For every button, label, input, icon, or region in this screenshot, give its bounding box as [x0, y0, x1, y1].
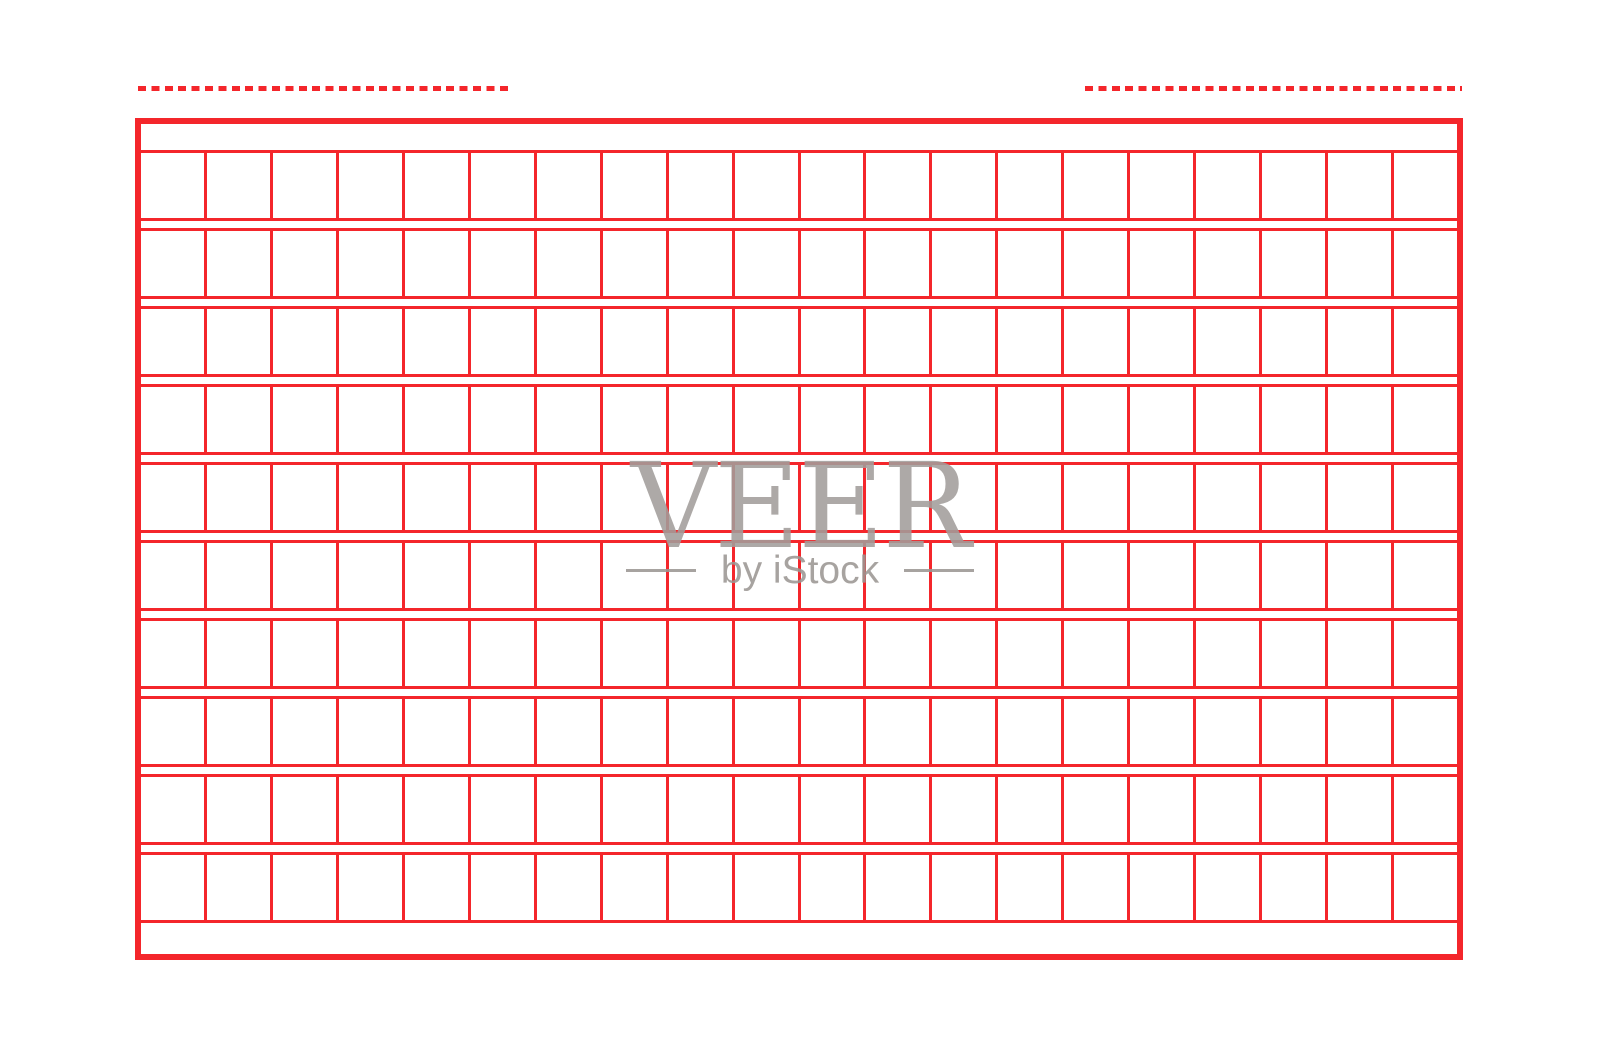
character-cell [1130, 699, 1196, 764]
top-dashed-line-left [138, 86, 510, 91]
character-cell [1130, 153, 1196, 218]
top-dashed-line-right [1085, 86, 1462, 91]
character-cell [273, 699, 339, 764]
character-cell [537, 387, 603, 452]
character-cell [603, 465, 669, 530]
character-cell [998, 543, 1064, 608]
character-cell [1328, 543, 1394, 608]
character-cell [537, 153, 603, 218]
character-cell [801, 153, 867, 218]
character-cell [603, 855, 669, 920]
character-cell [603, 309, 669, 374]
character-cell [801, 855, 867, 920]
character-cell [537, 699, 603, 764]
character-cell [735, 699, 801, 764]
character-cell [1394, 621, 1457, 686]
character-cell [471, 387, 537, 452]
character-cell [207, 465, 273, 530]
character-cell [1196, 387, 1262, 452]
character-cell [207, 777, 273, 842]
character-cell [405, 855, 471, 920]
character-cell [998, 777, 1064, 842]
character-cell [603, 153, 669, 218]
writing-row [141, 384, 1457, 455]
character-cell [141, 465, 207, 530]
character-cell [471, 621, 537, 686]
writing-rows-container [141, 124, 1457, 954]
character-cell [932, 387, 998, 452]
character-cell [998, 153, 1064, 218]
character-cell [603, 231, 669, 296]
character-cell [405, 153, 471, 218]
character-cell [273, 621, 339, 686]
character-cell [1328, 699, 1394, 764]
character-cell [801, 387, 867, 452]
character-cell [998, 621, 1064, 686]
character-cell [1196, 777, 1262, 842]
character-cell [1262, 777, 1328, 842]
character-cell [1064, 231, 1130, 296]
character-cell [932, 777, 998, 842]
character-cell [866, 309, 932, 374]
writing-row [141, 462, 1457, 533]
character-cell [866, 543, 932, 608]
character-cell [735, 621, 801, 686]
character-cell [1394, 855, 1457, 920]
character-cell [603, 387, 669, 452]
character-cell [669, 387, 735, 452]
character-cell [1064, 465, 1130, 530]
character-cell [1196, 543, 1262, 608]
character-cell [1328, 621, 1394, 686]
character-cell [932, 621, 998, 686]
character-cell [603, 699, 669, 764]
character-cell [801, 543, 867, 608]
character-cell [207, 309, 273, 374]
character-cell [866, 621, 932, 686]
character-cell [1064, 621, 1130, 686]
character-cell [141, 777, 207, 842]
character-cell [537, 309, 603, 374]
character-cell [866, 855, 932, 920]
character-cell [1130, 543, 1196, 608]
character-cell [141, 231, 207, 296]
character-cell [273, 465, 339, 530]
character-cell [1130, 621, 1196, 686]
character-cell [1262, 699, 1328, 764]
composition-sheet-page: { "page": { "background": "#ffffff" }, "… [0, 0, 1600, 1048]
character-cell [932, 231, 998, 296]
character-cell [801, 309, 867, 374]
character-cell [1064, 153, 1130, 218]
character-cell [1394, 777, 1457, 842]
character-cell [1064, 387, 1130, 452]
character-cell [141, 153, 207, 218]
character-cell [1262, 543, 1328, 608]
character-cell [339, 621, 405, 686]
character-cell [801, 465, 867, 530]
character-cell [1196, 855, 1262, 920]
character-cell [1262, 465, 1328, 530]
character-cell [1328, 387, 1394, 452]
character-cell [141, 621, 207, 686]
character-cell [273, 543, 339, 608]
writing-row [141, 150, 1457, 221]
character-cell [998, 309, 1064, 374]
character-cell [405, 621, 471, 686]
character-cell [603, 621, 669, 686]
character-cell [1262, 231, 1328, 296]
character-cell [1064, 777, 1130, 842]
character-cell [1394, 465, 1457, 530]
character-cell [273, 855, 339, 920]
character-cell [1328, 855, 1394, 920]
character-cell [1394, 699, 1457, 764]
character-cell [339, 387, 405, 452]
character-cell [1328, 465, 1394, 530]
writing-row [141, 540, 1457, 611]
character-cell [866, 699, 932, 764]
character-cell [669, 465, 735, 530]
character-cell [471, 699, 537, 764]
character-cell [1394, 153, 1457, 218]
writing-row [141, 228, 1457, 299]
character-cell [207, 543, 273, 608]
character-cell [998, 387, 1064, 452]
character-cell [1394, 309, 1457, 374]
character-cell [932, 153, 998, 218]
character-cell [1328, 309, 1394, 374]
character-cell [866, 231, 932, 296]
character-cell [339, 153, 405, 218]
character-cell [1394, 387, 1457, 452]
character-cell [273, 231, 339, 296]
character-cell [1196, 621, 1262, 686]
character-cell [1196, 309, 1262, 374]
character-cell [669, 231, 735, 296]
character-cell [141, 855, 207, 920]
character-cell [1262, 309, 1328, 374]
character-cell [405, 699, 471, 764]
character-cell [669, 621, 735, 686]
character-cell [735, 387, 801, 452]
character-cell [866, 153, 932, 218]
character-cell [339, 231, 405, 296]
character-cell [405, 777, 471, 842]
character-cell [405, 231, 471, 296]
character-cell [735, 543, 801, 608]
character-cell [669, 543, 735, 608]
character-cell [471, 153, 537, 218]
character-cell [1064, 699, 1130, 764]
character-cell [471, 777, 537, 842]
character-cell [801, 699, 867, 764]
character-cell [1394, 231, 1457, 296]
character-cell [207, 231, 273, 296]
character-cell [141, 309, 207, 374]
character-cell [735, 153, 801, 218]
character-cell [866, 465, 932, 530]
character-cell [932, 309, 998, 374]
character-cell [669, 153, 735, 218]
character-cell [339, 309, 405, 374]
character-cell [603, 543, 669, 608]
character-cell [339, 543, 405, 608]
character-cell [801, 231, 867, 296]
character-cell [537, 855, 603, 920]
character-cell [471, 855, 537, 920]
character-cell [273, 153, 339, 218]
character-cell [735, 777, 801, 842]
character-cell [339, 699, 405, 764]
character-cell [735, 855, 801, 920]
character-cell [801, 621, 867, 686]
writing-row [141, 306, 1457, 377]
character-cell [998, 855, 1064, 920]
character-cell [1064, 543, 1130, 608]
character-cell [932, 465, 998, 530]
writing-row [141, 618, 1457, 689]
character-cell [141, 699, 207, 764]
character-cell [1130, 387, 1196, 452]
character-cell [207, 699, 273, 764]
character-cell [1328, 231, 1394, 296]
character-cell [207, 855, 273, 920]
character-cell [207, 621, 273, 686]
character-cell [537, 465, 603, 530]
character-cell [471, 543, 537, 608]
character-cell [537, 231, 603, 296]
character-cell [207, 387, 273, 452]
character-cell [339, 777, 405, 842]
character-cell [1064, 855, 1130, 920]
character-cell [273, 309, 339, 374]
character-cell [1328, 777, 1394, 842]
character-cell [405, 465, 471, 530]
character-cell [1394, 543, 1457, 608]
character-cell [866, 387, 932, 452]
character-cell [669, 699, 735, 764]
writing-row [141, 774, 1457, 845]
character-cell [866, 777, 932, 842]
manuscript-grid-sheet [135, 118, 1463, 960]
character-cell [998, 231, 1064, 296]
character-cell [537, 621, 603, 686]
character-cell [537, 777, 603, 842]
character-cell [1262, 387, 1328, 452]
character-cell [1328, 153, 1394, 218]
character-cell [932, 543, 998, 608]
character-cell [1196, 153, 1262, 218]
character-cell [1130, 855, 1196, 920]
character-cell [1196, 231, 1262, 296]
writing-row [141, 852, 1457, 923]
character-cell [1064, 309, 1130, 374]
character-cell [932, 699, 998, 764]
character-cell [471, 309, 537, 374]
character-cell [207, 153, 273, 218]
character-cell [339, 465, 405, 530]
character-cell [1262, 153, 1328, 218]
character-cell [801, 777, 867, 842]
character-cell [998, 465, 1064, 530]
character-cell [141, 387, 207, 452]
character-cell [603, 777, 669, 842]
character-cell [1130, 309, 1196, 374]
character-cell [273, 777, 339, 842]
character-cell [735, 309, 801, 374]
character-cell [405, 309, 471, 374]
character-cell [273, 387, 339, 452]
character-cell [405, 543, 471, 608]
character-cell [735, 231, 801, 296]
character-cell [1196, 699, 1262, 764]
character-cell [669, 777, 735, 842]
writing-row [141, 696, 1457, 767]
character-cell [471, 465, 537, 530]
character-cell [1130, 465, 1196, 530]
character-cell [1262, 855, 1328, 920]
character-cell [1130, 777, 1196, 842]
character-cell [537, 543, 603, 608]
character-cell [339, 855, 405, 920]
character-cell [141, 543, 207, 608]
character-cell [669, 855, 735, 920]
character-cell [471, 231, 537, 296]
character-cell [1262, 621, 1328, 686]
character-cell [932, 855, 998, 920]
character-cell [405, 387, 471, 452]
character-cell [1130, 231, 1196, 296]
character-cell [1196, 465, 1262, 530]
character-cell [998, 699, 1064, 764]
character-cell [735, 465, 801, 530]
character-cell [669, 309, 735, 374]
